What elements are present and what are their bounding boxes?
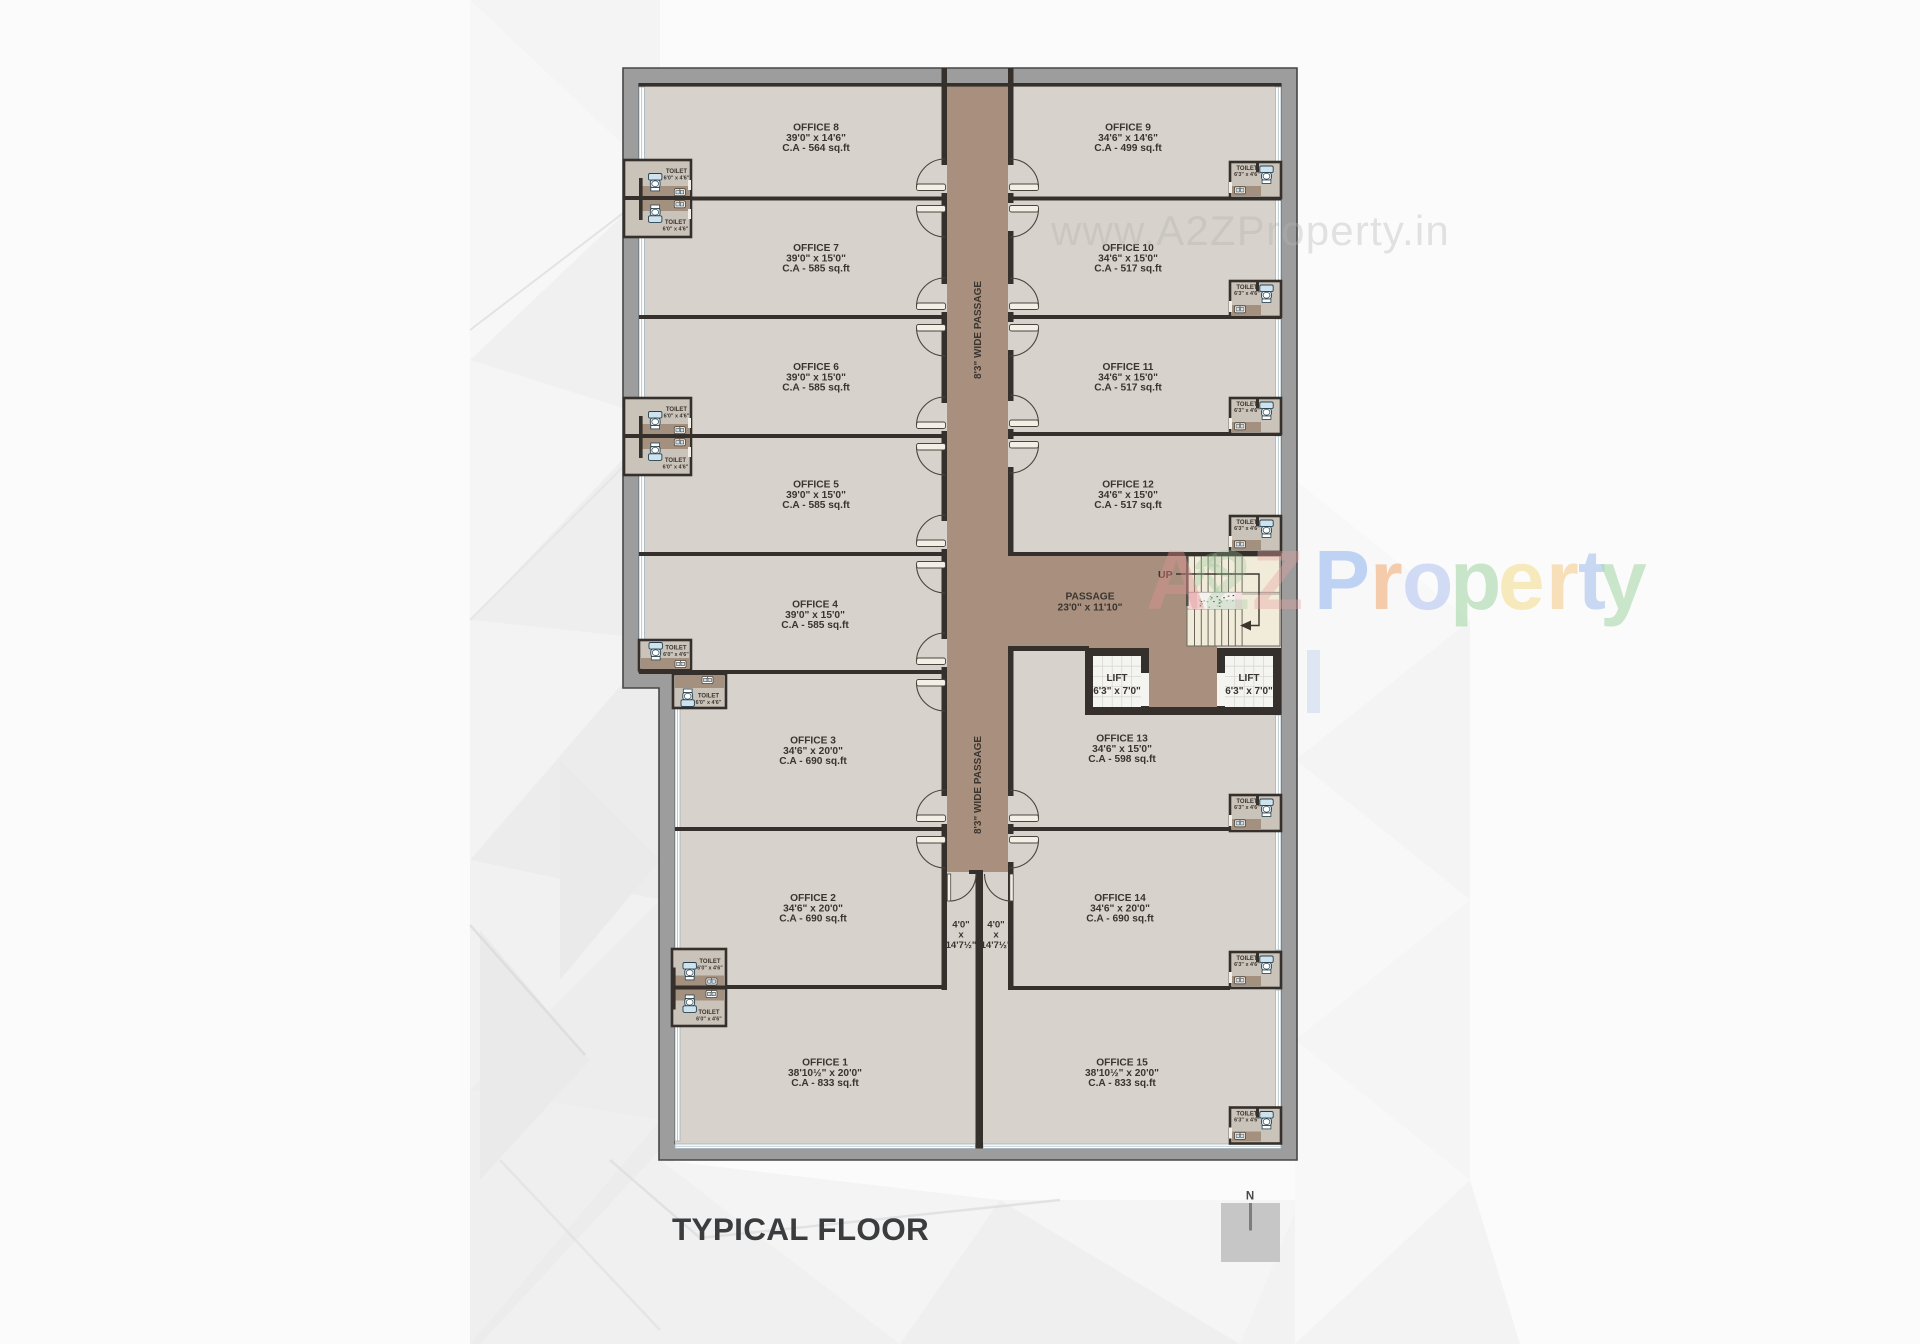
svg-text:8'3" WIDE PASSAGE: 8'3" WIDE PASSAGE bbox=[973, 281, 984, 379]
svg-text:8'3" WIDE PASSAGE: 8'3" WIDE PASSAGE bbox=[973, 736, 984, 834]
svg-text:TOILET6'3" x 4'6": TOILET6'3" x 4'6" bbox=[1234, 956, 1260, 968]
svg-text:www.A2ZProperty.in: www.A2ZProperty.in bbox=[1050, 207, 1450, 254]
svg-text:OFFICE 1334'6" x 15'0"C.A - 59: OFFICE 1334'6" x 15'0"C.A - 598 sq.ft bbox=[1088, 734, 1156, 765]
svg-text:p: p bbox=[1450, 533, 1501, 627]
svg-text:TOILET6'3" x 4'6": TOILET6'3" x 4'6" bbox=[1234, 520, 1260, 532]
svg-text:TOILET6'0" x 4'6": TOILET6'0" x 4'6" bbox=[663, 220, 689, 232]
svg-text:TOILET6'3" x 4'6": TOILET6'3" x 4'6" bbox=[1234, 799, 1260, 811]
svg-text:TOILET6'3" x 4'6": TOILET6'3" x 4'6" bbox=[1234, 166, 1260, 178]
svg-text:o: o bbox=[1402, 533, 1453, 627]
svg-text:TOILET6'0" x 4'6": TOILET6'0" x 4'6" bbox=[697, 959, 723, 971]
svg-text:TOILET6'3" x 4'6": TOILET6'3" x 4'6" bbox=[1234, 1111, 1260, 1123]
svg-text:e: e bbox=[1498, 533, 1545, 627]
svg-text:TOILET6'3" x 4'6": TOILET6'3" x 4'6" bbox=[1234, 285, 1260, 297]
svg-text:A: A bbox=[1146, 533, 1207, 627]
svg-text:OFFICE 1434'6" x 20'0"C.A - 69: OFFICE 1434'6" x 20'0"C.A - 690 sq.ft bbox=[1086, 893, 1154, 924]
svg-text:r: r bbox=[1546, 533, 1579, 627]
svg-text:N: N bbox=[1246, 1191, 1254, 1203]
svg-text:2: 2 bbox=[1204, 533, 1251, 627]
svg-text:PASSAGE23'0" x 11'10": PASSAGE23'0" x 11'10" bbox=[1058, 592, 1123, 614]
svg-text:TOILET6'0" x 4'6": TOILET6'0" x 4'6" bbox=[696, 694, 722, 706]
svg-text:TOILET6'0" x 4'6": TOILET6'0" x 4'6" bbox=[696, 1010, 722, 1022]
svg-text:TYPICAL FLOOR: TYPICAL FLOOR bbox=[672, 1211, 929, 1247]
svg-text:TOILET6'0" x 4'6": TOILET6'0" x 4'6" bbox=[663, 458, 689, 470]
svg-text:P: P bbox=[1314, 533, 1370, 627]
svg-text:OFFICE 1234'6" x 15'0"C.A - 51: OFFICE 1234'6" x 15'0"C.A - 517 sq.ft bbox=[1094, 480, 1162, 511]
svg-text:y: y bbox=[1600, 533, 1647, 627]
svg-text:r: r bbox=[1370, 533, 1403, 627]
svg-text:Z: Z bbox=[1252, 533, 1303, 627]
svg-text:TOILET6'0" x 4'6": TOILET6'0" x 4'6" bbox=[663, 646, 689, 658]
svg-text:OFFICE 1134'6" x 15'0"C.A - 51: OFFICE 1134'6" x 15'0"C.A - 517 sq.ft bbox=[1094, 362, 1162, 393]
svg-text:TOILET6'0" x 4'6": TOILET6'0" x 4'6" bbox=[664, 169, 690, 181]
svg-text:TOILET6'0" x 4'6": TOILET6'0" x 4'6" bbox=[664, 407, 690, 419]
svg-text:TOILET6'3" x 4'6": TOILET6'3" x 4'6" bbox=[1234, 402, 1260, 414]
